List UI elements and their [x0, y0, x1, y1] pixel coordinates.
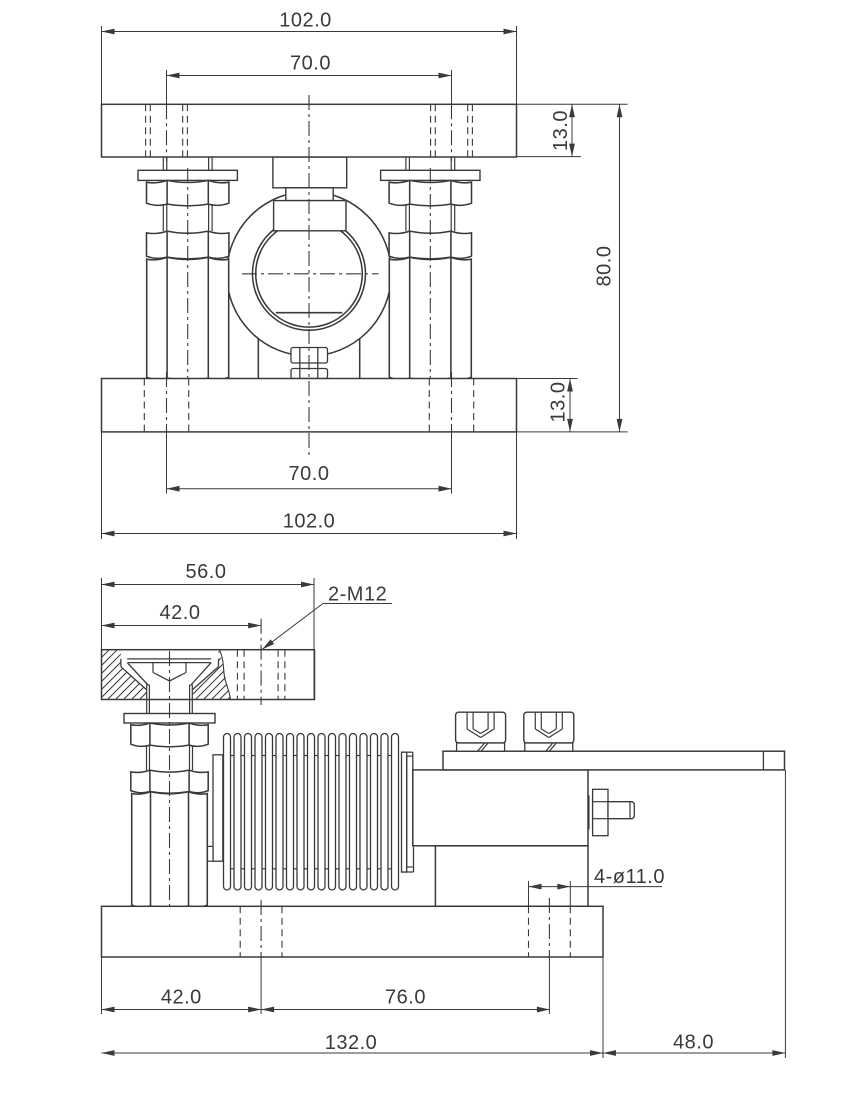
svg-text:132.0: 132.0 [325, 1032, 378, 1054]
svg-text:48.0: 48.0 [673, 1032, 714, 1054]
svg-text:42.0: 42.0 [161, 987, 202, 1009]
svg-text:70.0: 70.0 [290, 53, 331, 75]
svg-text:102.0: 102.0 [283, 511, 336, 533]
svg-text:13.0: 13.0 [550, 110, 572, 151]
svg-text:4-ø11.0: 4-ø11.0 [594, 866, 665, 888]
svg-text:56.0: 56.0 [186, 561, 227, 583]
svg-text:13.0: 13.0 [548, 382, 570, 423]
svg-text:80.0: 80.0 [594, 246, 616, 287]
svg-text:42.0: 42.0 [160, 602, 201, 624]
svg-text:70.0: 70.0 [289, 463, 330, 485]
svg-text:102.0: 102.0 [279, 10, 332, 32]
svg-text:2-M12: 2-M12 [328, 583, 387, 605]
svg-text:76.0: 76.0 [385, 987, 426, 1009]
